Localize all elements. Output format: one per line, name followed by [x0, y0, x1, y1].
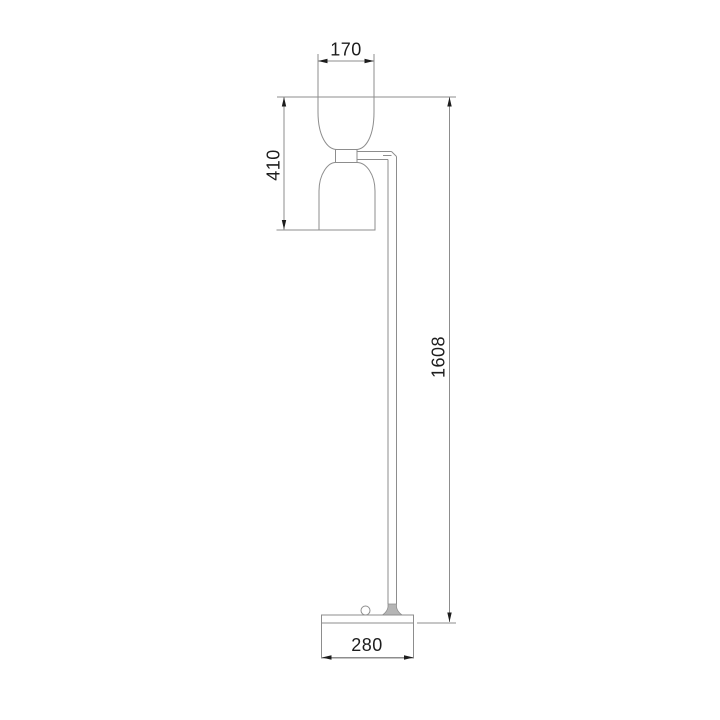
- arrow-170-left: [318, 59, 328, 63]
- label-head-height: 410: [264, 149, 284, 181]
- arrow-170-right: [365, 59, 375, 63]
- drawing-canvas: 170 410 1608 280: [0, 0, 720, 720]
- label-base-width: 280: [351, 635, 383, 655]
- label-shade-width: 170: [330, 40, 362, 60]
- lamp-outline: [318, 97, 414, 658]
- shade-connector: [336, 150, 358, 163]
- lamp-pole: [388, 157, 397, 605]
- arrow-410-bottom: [282, 220, 286, 230]
- pole-foot: [383, 604, 403, 615]
- arrow-1608-top: [447, 97, 451, 107]
- lamp-arm: [357, 152, 397, 160]
- floor-lamp-technical-drawing: 170 410 1608 280: [0, 0, 720, 720]
- base-switch: [361, 606, 370, 615]
- dimension-arrowheads: [282, 59, 452, 660]
- label-total-height: 1608: [429, 336, 449, 378]
- arrow-1608-bottom: [447, 613, 451, 623]
- upper-shade: [318, 97, 374, 150]
- arrow-410-top: [282, 97, 286, 107]
- lower-shade: [319, 163, 375, 231]
